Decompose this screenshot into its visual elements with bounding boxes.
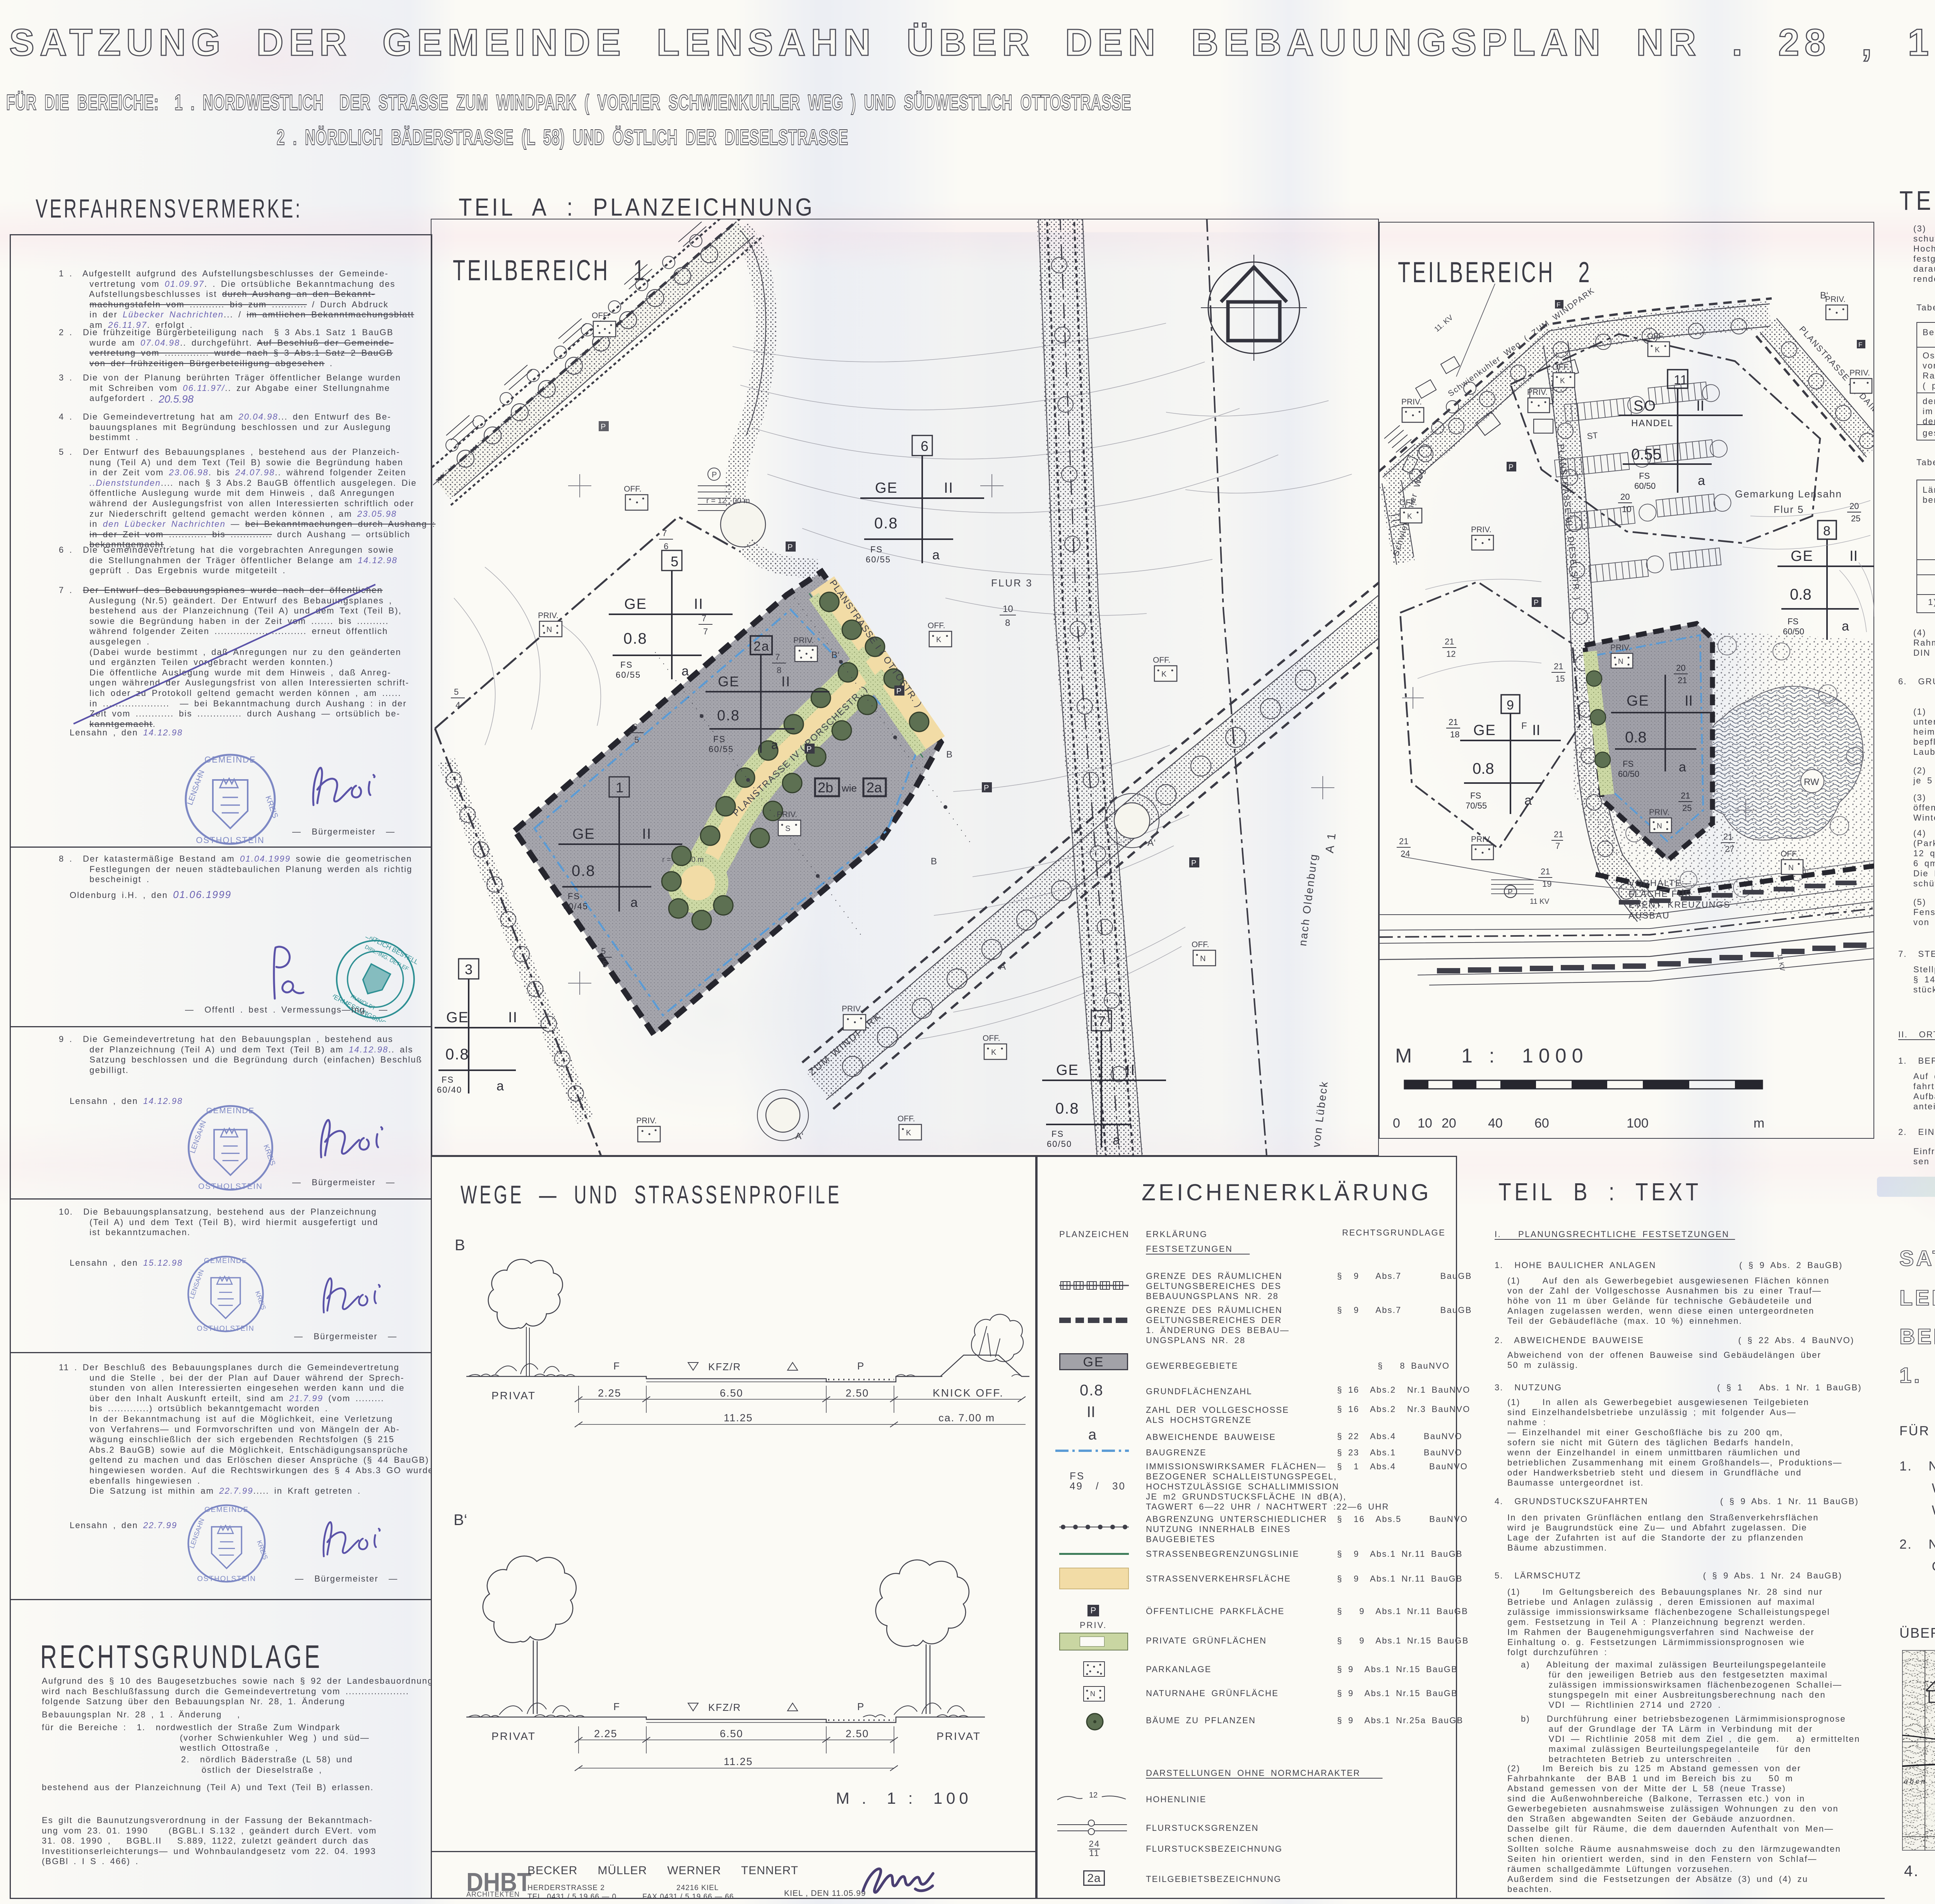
svg-text:GE: GE <box>624 596 647 612</box>
svg-text:P: P <box>1508 888 1513 896</box>
svg-text:100: 100 <box>1627 1116 1649 1131</box>
svg-text:0.8: 0.8 <box>1790 586 1812 603</box>
svg-text:PRIV.: PRIV. <box>1649 808 1670 817</box>
svg-text:9: 9 <box>1507 698 1514 713</box>
svg-text:PRIV.: PRIV. <box>1825 295 1846 304</box>
svg-text:20: 20 <box>1442 1116 1456 1131</box>
svg-text:KREIS: KREIS <box>264 795 279 819</box>
svg-text:OFF.: OFF. <box>624 485 642 494</box>
svg-text:P: P <box>788 543 793 552</box>
svg-text:5: 5 <box>671 554 679 569</box>
svg-text:RW: RW <box>1804 777 1819 787</box>
svg-text:ST: ST <box>1586 430 1598 441</box>
svg-text:60: 60 <box>1534 1116 1549 1131</box>
svg-text:OSTHOLSTEIN: OSTHOLSTEIN <box>197 1575 256 1583</box>
svg-text:7: 7 <box>775 652 780 662</box>
svg-text:PRIV.: PRIV. <box>793 636 814 645</box>
svg-text:N: N <box>546 626 552 634</box>
svg-text:60/55: 60/55 <box>616 670 641 680</box>
svg-text:GEMEINDE: GEMEINDE <box>204 1256 247 1265</box>
svg-text:0.8: 0.8 <box>445 1046 469 1063</box>
svg-text:0.8: 0.8 <box>623 630 647 647</box>
svg-text:FS: FS <box>1623 759 1634 769</box>
svg-text:OFF.: OFF. <box>928 621 945 630</box>
svg-text:Gemarkung Lensahn: Gemarkung Lensahn <box>1735 488 1842 500</box>
svg-text:60/50: 60/50 <box>1047 1139 1072 1149</box>
svg-text:KFZ/R: KFZ/R <box>708 1361 741 1373</box>
svg-text:GEMEINDE: GEMEINDE <box>204 1506 249 1514</box>
svg-text:2.50: 2.50 <box>846 1387 869 1399</box>
svg-text:P: P <box>1509 463 1514 471</box>
svg-text:60/50: 60/50 <box>1634 481 1656 491</box>
svg-text:S: S <box>785 824 790 833</box>
svg-text:KNICK OFF.: KNICK OFF. <box>933 1387 1004 1399</box>
svg-text:12: 12 <box>1089 1791 1098 1799</box>
svg-text:2b: 2b <box>818 780 833 795</box>
svg-text:K: K <box>1161 670 1167 679</box>
svg-text:a: a <box>630 895 639 910</box>
svg-text:N: N <box>1618 658 1623 666</box>
svg-text:40: 40 <box>1488 1116 1503 1131</box>
svg-text:FS: FS <box>1051 1129 1064 1139</box>
svg-text:von Lübeck: von Lübeck <box>1310 1080 1330 1148</box>
svg-text:5: 5 <box>603 960 607 969</box>
svg-text:FS: FS <box>713 734 726 744</box>
svg-text:2.25: 2.25 <box>598 1387 622 1399</box>
svg-text:F: F <box>1557 301 1560 308</box>
svg-text:7: 7 <box>1555 841 1560 851</box>
svg-text:12: 12 <box>1446 649 1456 659</box>
svg-text:GEMEINDE: GEMEINDE <box>206 1106 255 1115</box>
svg-text:K: K <box>1560 377 1565 385</box>
svg-text:6: 6 <box>921 438 929 454</box>
svg-text:PRIV.: PRIV. <box>1849 368 1870 377</box>
svg-text:10: 10 <box>1003 604 1013 614</box>
svg-text:a: a <box>1524 793 1532 808</box>
svg-text:60/45: 60/45 <box>563 901 588 911</box>
svg-text:PRIV.: PRIV. <box>1401 398 1422 406</box>
svg-text:20: 20 <box>1620 492 1630 502</box>
svg-text:F: F <box>613 1360 620 1372</box>
svg-text:10: 10 <box>1622 504 1631 514</box>
svg-text:Flur 5: Flur 5 <box>1774 504 1804 515</box>
svg-text:7: 7 <box>662 528 667 538</box>
svg-text:GE: GE <box>1473 722 1496 739</box>
svg-text:wie: wie <box>841 782 857 794</box>
svg-text:PRIVAT: PRIVAT <box>491 1390 536 1402</box>
svg-text:5: 5 <box>454 687 459 697</box>
svg-text:EVENT. KREUZUNGS: EVENT. KREUZUNGS <box>1628 900 1730 910</box>
svg-text:OFF.: OFF. <box>1153 656 1171 665</box>
svg-text:a: a <box>1113 1133 1121 1148</box>
svg-text:P: P <box>984 784 989 792</box>
svg-text:a: a <box>1698 473 1705 488</box>
svg-text:LENSAHN: LENSAHN <box>188 1268 205 1300</box>
svg-text:24: 24 <box>1401 849 1410 859</box>
svg-text:N: N <box>1090 1690 1095 1698</box>
svg-text:A‘: A‘ <box>795 1131 803 1141</box>
svg-text:60/50: 60/50 <box>1618 769 1639 779</box>
svg-text:OSTHOLSTEIN: OSTHOLSTEIN <box>197 1324 255 1332</box>
svg-text:6: 6 <box>633 722 637 732</box>
svg-text:FS: FS <box>870 545 883 554</box>
svg-text:GE: GE <box>1791 548 1813 564</box>
svg-text:N: N <box>1200 955 1206 963</box>
svg-text:6.50: 6.50 <box>720 1387 743 1399</box>
svg-text:KFZ/R: KFZ/R <box>708 1702 741 1713</box>
svg-text:60/40: 60/40 <box>437 1085 462 1095</box>
svg-text:60/55: 60/55 <box>709 744 734 754</box>
svg-text:20: 20 <box>1676 663 1685 673</box>
svg-text:M 1 : 1000: M 1 : 1000 <box>1395 1045 1589 1067</box>
svg-text:5: 5 <box>634 735 639 745</box>
svg-text:II: II <box>508 1009 518 1026</box>
svg-text:21: 21 <box>1681 791 1690 800</box>
svg-text:OFF.: OFF. <box>592 311 610 320</box>
svg-text:FS: FS <box>568 891 580 901</box>
svg-text:5: 5 <box>601 946 606 956</box>
svg-text:25: 25 <box>1682 803 1692 813</box>
svg-text:8: 8 <box>777 665 781 675</box>
svg-text:II: II <box>1849 548 1858 564</box>
svg-text:2a: 2a <box>866 780 882 795</box>
svg-text:II: II <box>694 596 704 612</box>
svg-text:II: II <box>944 480 954 496</box>
svg-text:GEMEINDE: GEMEINDE <box>204 755 256 764</box>
svg-text:PRIV.: PRIV. <box>1471 835 1491 844</box>
svg-text:PRIVAT: PRIVAT <box>937 1730 981 1742</box>
svg-text:GE: GE <box>1627 693 1649 709</box>
svg-text:0.8: 0.8 <box>572 862 596 879</box>
svg-text:OFF.: OFF. <box>1192 940 1209 949</box>
svg-text:PRIV.: PRIV. <box>538 611 558 620</box>
svg-text:FS: FS <box>1470 791 1481 800</box>
svg-text:70/55: 70/55 <box>1466 801 1487 811</box>
svg-text:P: P <box>601 423 606 431</box>
svg-text:ca. 7.00 m: ca. 7.00 m <box>938 1412 995 1424</box>
svg-text:a: a <box>497 1079 505 1093</box>
svg-text:PRIV.: PRIV. <box>777 810 797 819</box>
svg-text:21: 21 <box>1445 637 1454 646</box>
svg-text:OSTHOLSTEIN: OSTHOLSTEIN <box>196 835 264 845</box>
svg-text:nach Oldenburg: nach Oldenburg <box>1296 852 1320 946</box>
svg-text:PRIV.: PRIV. <box>842 1004 862 1013</box>
svg-text:PRIVAT: PRIVAT <box>491 1730 536 1742</box>
svg-text:GE: GE <box>446 1009 469 1026</box>
svg-text:OFF.: OFF. <box>1647 332 1665 341</box>
svg-text:K: K <box>936 636 942 644</box>
svg-text:a: a <box>771 738 779 752</box>
svg-text:r = 12 . 00 m: r = 12 . 00 m <box>706 497 750 505</box>
svg-text:M . 1 : 100: M . 1 : 100 <box>836 1789 972 1807</box>
svg-text:18: 18 <box>1450 730 1459 739</box>
svg-text:m: m <box>1753 1116 1764 1131</box>
svg-text:II: II <box>1532 722 1540 739</box>
svg-text:II: II <box>1126 1062 1135 1078</box>
svg-text:60/50: 60/50 <box>1783 627 1804 636</box>
svg-text:GE: GE <box>718 674 740 689</box>
svg-text:8: 8 <box>1823 524 1831 538</box>
svg-text:VORHALTE—: VORHALTE— <box>1628 878 1692 888</box>
svg-text:B: B <box>455 1237 465 1254</box>
svg-text:25: 25 <box>1851 514 1860 523</box>
svg-text:OFF.: OFF. <box>983 1034 1000 1043</box>
svg-text:SO: SO <box>1634 398 1656 414</box>
svg-text:GE: GE <box>1056 1062 1079 1078</box>
svg-text:F: F <box>613 1701 620 1712</box>
svg-text:0.8: 0.8 <box>1473 760 1494 777</box>
svg-text:7: 7 <box>1098 1013 1106 1029</box>
svg-text:21: 21 <box>1723 832 1733 841</box>
svg-text:11.25: 11.25 <box>724 1412 753 1424</box>
svg-text:a: a <box>932 548 940 562</box>
svg-text:a: a <box>1679 760 1686 775</box>
svg-text:11.25: 11.25 <box>724 1756 753 1767</box>
svg-text:A‘: A‘ <box>1147 838 1156 848</box>
svg-text:21: 21 <box>1449 717 1458 727</box>
svg-text:FS: FS <box>620 660 633 670</box>
svg-text:AUSBAU: AUSBAU <box>1628 910 1670 920</box>
svg-text:PRIV.: PRIV. <box>1527 388 1548 397</box>
svg-text:21: 21 <box>1541 867 1550 876</box>
svg-text:8: 8 <box>1005 618 1010 628</box>
svg-text:HANDEL: HANDEL <box>1631 418 1673 428</box>
svg-text:3: 3 <box>465 961 473 977</box>
svg-text:FS: FS <box>1639 471 1650 481</box>
svg-text:FLUR 3: FLUR 3 <box>991 577 1033 589</box>
svg-text:2a: 2a <box>753 639 770 654</box>
svg-text:K: K <box>991 1048 997 1057</box>
svg-text:6: 6 <box>664 542 668 551</box>
svg-text:P: P <box>712 471 717 479</box>
svg-text:0.8: 0.8 <box>1055 1100 1079 1117</box>
svg-text:LENSAHN: LENSAHN <box>186 769 206 806</box>
svg-text:0.8: 0.8 <box>717 708 740 724</box>
svg-text:P: P <box>1191 859 1196 867</box>
svg-text:KREIS: KREIS <box>254 1290 266 1311</box>
svg-text:11 KV: 11 KV <box>1530 898 1550 906</box>
svg-text:II: II <box>1685 693 1693 709</box>
svg-text:a: a <box>1842 619 1849 634</box>
svg-text:11. KV: 11. KV <box>1433 314 1455 334</box>
svg-text:21: 21 <box>1399 836 1408 846</box>
svg-text:P: P <box>807 745 812 754</box>
svg-text:60/55: 60/55 <box>866 555 891 564</box>
svg-text:PRIV.: PRIV. <box>636 1116 657 1125</box>
svg-text:N: N <box>1788 864 1794 872</box>
svg-text:KREIS: KREIS <box>255 1539 268 1561</box>
svg-text:K: K <box>1407 512 1412 521</box>
svg-text:KREIS: KREIS <box>262 1143 276 1167</box>
svg-text:19: 19 <box>1542 879 1551 889</box>
svg-text:B‘: B‘ <box>454 1512 467 1529</box>
svg-text:OFF.: OFF. <box>897 1114 915 1123</box>
svg-text:0: 0 <box>1393 1116 1400 1131</box>
svg-text:P: P <box>1534 599 1539 607</box>
svg-text:N: N <box>1657 822 1662 830</box>
svg-text:FLÄCHE FUR: FLÄCHE FUR <box>1628 889 1692 899</box>
svg-text:OFF.: OFF. <box>1399 498 1417 507</box>
svg-text:0.8: 0.8 <box>874 515 898 532</box>
svg-text:GE: GE <box>875 480 898 496</box>
svg-text:PRIV.: PRIV. <box>1471 525 1491 534</box>
svg-text:11: 11 <box>1674 373 1687 387</box>
svg-text:OFF.: OFF. <box>1781 850 1798 859</box>
svg-text:10: 10 <box>1418 1116 1432 1131</box>
svg-text:II: II <box>642 826 652 842</box>
svg-text:A: A <box>1000 961 1006 972</box>
svg-text:0.8: 0.8 <box>1625 729 1647 746</box>
svg-text:LENSAHN: LENSAHN <box>188 1119 207 1155</box>
svg-text:FS: FS <box>1788 617 1798 626</box>
svg-text:K: K <box>1655 346 1660 354</box>
svg-text:B: B <box>931 856 937 867</box>
svg-text:II: II <box>781 674 791 689</box>
svg-text:21: 21 <box>1554 829 1563 839</box>
svg-text:4: 4 <box>455 700 460 710</box>
svg-text:15: 15 <box>1555 674 1565 684</box>
svg-text:11 KV: 11 KV <box>1776 953 1786 972</box>
svg-text:21: 21 <box>1678 675 1687 685</box>
svg-text:K: K <box>906 1129 911 1137</box>
svg-text:a b e n: a b e n <box>1904 1777 1925 1786</box>
svg-text:FS: FS <box>442 1075 454 1085</box>
svg-text:2.25: 2.25 <box>594 1728 618 1739</box>
svg-text:a: a <box>682 664 690 679</box>
svg-text:0.55: 0.55 <box>1631 446 1661 463</box>
svg-text:7: 7 <box>703 627 708 636</box>
svg-text:P: P <box>857 1360 864 1372</box>
svg-text:P: P <box>896 687 901 696</box>
svg-text:27: 27 <box>1725 844 1734 854</box>
svg-text:OSTHOLSTEIN: OSTHOLSTEIN <box>198 1182 263 1191</box>
svg-text:21: 21 <box>1554 662 1563 671</box>
svg-text:P: P <box>857 1701 864 1712</box>
svg-text:2.50: 2.50 <box>846 1728 869 1739</box>
svg-text:GE: GE <box>572 826 595 842</box>
svg-text:1: 1 <box>616 780 624 795</box>
svg-text:7: 7 <box>702 614 706 623</box>
svg-text:B: B <box>946 749 952 760</box>
svg-text:PRIV.: PRIV. <box>1610 643 1631 652</box>
svg-text:OFF.: OFF. <box>1552 363 1570 372</box>
svg-text:A 1: A 1 <box>1323 831 1339 854</box>
svg-text:F: F <box>1521 721 1527 731</box>
svg-text:II: II <box>1696 398 1704 414</box>
svg-text:6.50: 6.50 <box>720 1728 743 1739</box>
svg-text:F: F <box>1858 341 1862 348</box>
